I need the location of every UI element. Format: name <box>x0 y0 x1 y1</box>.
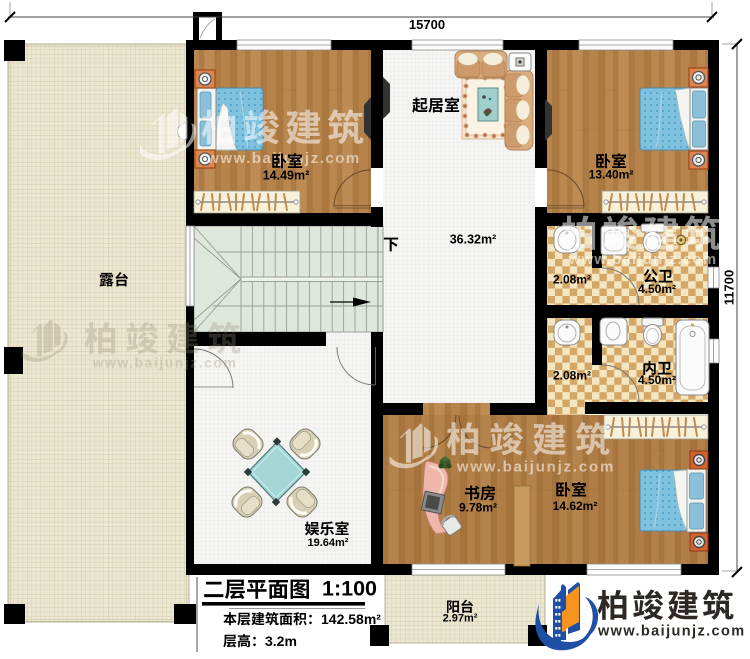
svg-text:www.baijunjz.com: www.baijunjz.com <box>456 458 615 475</box>
svg-text:3.2m: 3.2m <box>265 633 297 649</box>
svg-text:1:100: 1:100 <box>322 577 377 601</box>
svg-text:15700: 15700 <box>409 17 445 32</box>
svg-text:14.62m²: 14.62m² <box>553 499 598 513</box>
svg-text:4.50m²: 4.50m² <box>638 373 676 387</box>
svg-text:2.08m²: 2.08m² <box>553 368 591 382</box>
svg-text:36.32m²: 36.32m² <box>450 233 497 247</box>
svg-text:14.49m²: 14.49m² <box>263 169 310 183</box>
svg-text:142.58m²: 142.58m² <box>321 611 381 627</box>
svg-text:www.baijunjz.com: www.baijunjz.com <box>206 150 360 167</box>
svg-text:19.64m²: 19.64m² <box>308 537 349 549</box>
svg-text:4.50m²: 4.50m² <box>638 282 676 296</box>
svg-text:2.08m²: 2.08m² <box>553 272 591 286</box>
svg-text:www.baijunjz.com: www.baijunjz.com <box>568 251 718 268</box>
svg-text:9.78m²: 9.78m² <box>459 500 497 514</box>
svg-text:www.baijunjz.com: www.baijunjz.com <box>92 355 238 371</box>
svg-text:11700: 11700 <box>722 270 737 305</box>
svg-text:13.40m²: 13.40m² <box>589 167 634 181</box>
svg-text:2.97m²: 2.97m² <box>443 613 478 625</box>
svg-text:www.baijunjz.com: www.baijunjz.com <box>597 624 746 640</box>
